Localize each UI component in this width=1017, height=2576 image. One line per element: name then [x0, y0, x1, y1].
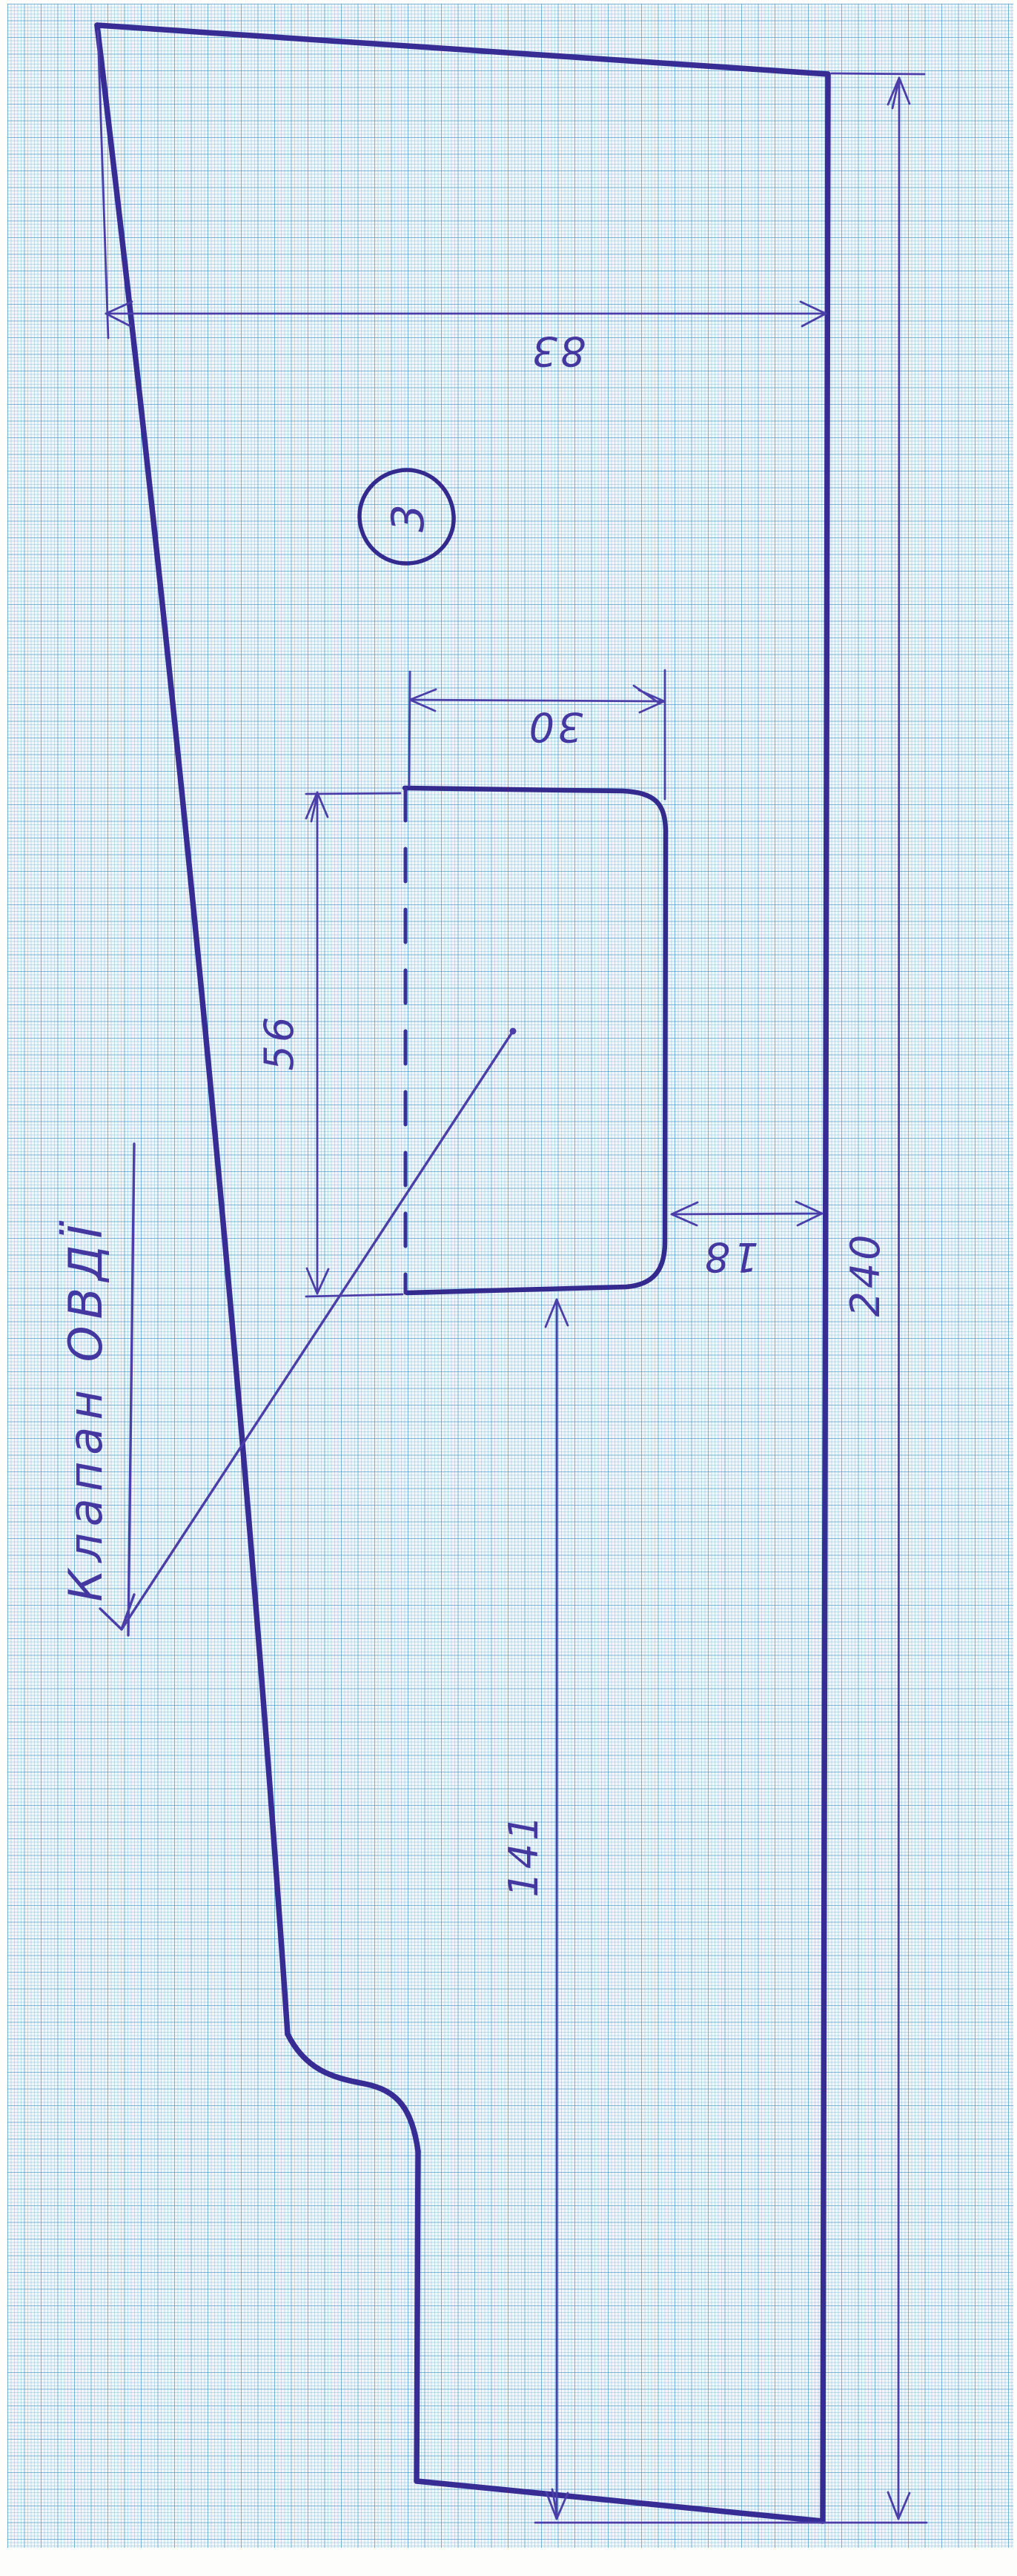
dim-label-30: 30: [526, 706, 583, 746]
dim-label-240: 240: [846, 1231, 886, 1317]
extension-line-top: [306, 793, 400, 794]
extension-line-bottom: [306, 1294, 403, 1297]
outline-bottom-edge: [417, 2481, 823, 2521]
dimension-83: [98, 31, 826, 338]
scanned-pattern-sheet: 83 30 56 18 141 240 3 Клапан ОВДЇ: [0, 0, 1017, 2576]
dimension-141: [546, 1299, 568, 2519]
dim-label-18: 18: [702, 1236, 759, 1277]
flap-solid-edge: [405, 788, 666, 1293]
piece-number: 3: [386, 504, 431, 532]
outline-top-edge: [97, 25, 828, 74]
dimension-18: [672, 1202, 822, 1225]
dim-label-56: 56: [259, 1014, 299, 1071]
dim-label-83: 83: [529, 331, 586, 371]
title-leader: [100, 1028, 517, 1636]
pattern-title: Клапан ОВДЇ: [63, 1218, 109, 1601]
flap-detail: [405, 788, 666, 1293]
title-underline: [128, 1144, 134, 1635]
dimension-line: [410, 700, 664, 701]
extension-line-left: [409, 672, 410, 786]
outline-lower-left-edge: [417, 2151, 418, 2481]
dimension-line: [898, 78, 899, 2519]
outline-step-curve: [288, 2034, 418, 2151]
extension-line-top: [832, 73, 924, 74]
arrowhead-right-icon: [634, 686, 664, 712]
outline-right-edge: [823, 74, 828, 2521]
dim-label-141: 141: [504, 1812, 544, 1897]
dimension-line: [672, 1213, 822, 1214]
leader-start-dot: [510, 1028, 517, 1035]
